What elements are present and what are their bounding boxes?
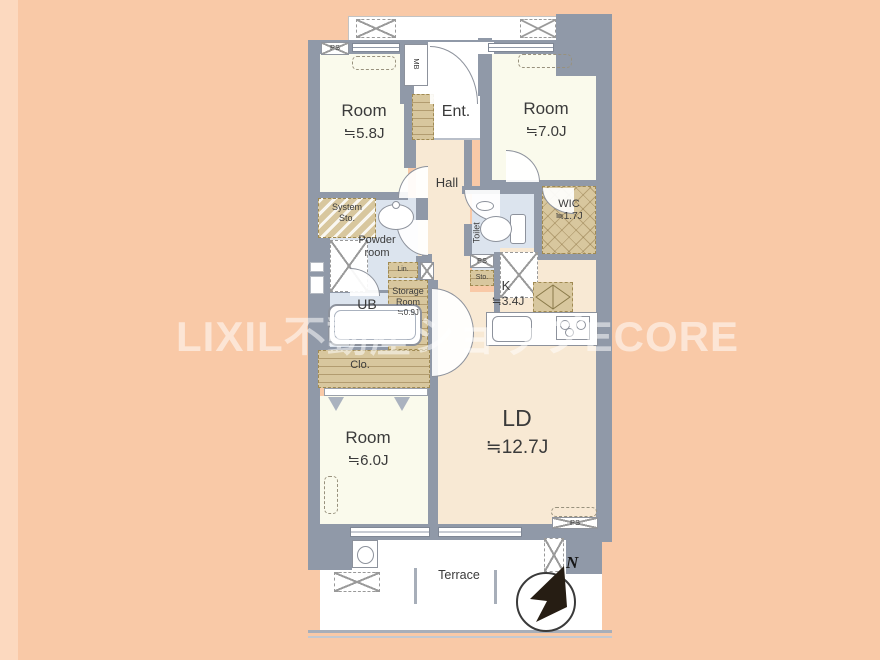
wall-accessory-1	[310, 262, 324, 272]
wall-right	[596, 14, 612, 542]
living-dining-size: ≒12.7J	[470, 438, 564, 458]
wic-label: WIC	[546, 199, 592, 211]
washbasin-tap-icon	[392, 201, 400, 209]
wall-powder-hall-upper	[416, 198, 428, 220]
terrace-label: Terrace	[428, 569, 490, 582]
wall-niche-outline	[324, 476, 338, 514]
ps-shaft-icon	[420, 262, 434, 280]
wall-accessory-2	[310, 276, 324, 294]
toilet-label: Toilet	[472, 204, 481, 262]
corridor-shaft-icon	[520, 19, 556, 38]
wall-corner-sw	[308, 524, 352, 570]
faucet-circle	[357, 546, 374, 564]
window-top-roomne	[488, 43, 554, 52]
toilet-tank-icon	[510, 214, 526, 244]
wic-size: ≒1.7J	[544, 212, 594, 223]
hall-label: Hall	[426, 176, 468, 190]
wall-roomne-left	[480, 52, 492, 182]
ceiling-light-outline	[352, 56, 396, 70]
entrance-label: Ent.	[434, 104, 478, 121]
window-top-roomnw	[352, 43, 400, 52]
room-ne-label: Room	[512, 100, 580, 118]
powder-room-label-1: Powder	[348, 235, 406, 247]
closet-door-track	[324, 388, 428, 396]
ps-bottom-right-label: PS	[552, 519, 598, 527]
room-nw-size: ≒5.8J	[328, 126, 400, 142]
room-sw-label: Room	[334, 429, 402, 447]
kitchen-label: K	[494, 279, 518, 293]
background-edge-strip	[0, 0, 18, 660]
ps-center-label: PS	[470, 257, 494, 265]
system-storage-label-2: Sto.	[322, 214, 372, 223]
window-bottom-ld	[438, 527, 522, 537]
terrace-divider	[494, 570, 497, 604]
linen-label: Lin.	[388, 266, 418, 273]
terrace-faucet-icon	[352, 540, 378, 568]
ps-top-left-label: PS	[321, 44, 349, 52]
corridor-shaft-icon	[356, 19, 396, 38]
wall-toilet-wic	[534, 186, 542, 256]
folding-door-mark-icon	[328, 397, 344, 411]
compass: N	[508, 552, 594, 638]
watermark: LIXIL不動産ショップECORE	[176, 303, 739, 364]
room-sw-size: ≒6.0J	[332, 453, 404, 469]
system-storage-label-1: System	[320, 203, 374, 212]
equipment-pad-icon	[334, 572, 380, 592]
powder-room-label-2: room	[352, 248, 402, 260]
ceiling-light-outline	[518, 54, 572, 68]
room-nw-label: Room	[330, 102, 398, 120]
toilet-bowl-icon	[480, 216, 512, 242]
meter-box-label: MB	[412, 52, 420, 76]
ld-duct-outline	[551, 507, 597, 517]
floorplan-image: N Room ≒5.8J Ent. Room ≒7.0J Hall System…	[0, 0, 880, 660]
wall-roomsw-ld	[428, 388, 438, 524]
room-ne-size: ≒7.0J	[510, 124, 582, 140]
compass-north-label: N	[565, 553, 579, 572]
window-bottom-roomsw	[350, 527, 430, 537]
living-dining-label: LD	[494, 406, 540, 430]
small-storage-label: Sto.	[470, 274, 494, 281]
terrace-divider	[414, 568, 417, 604]
storage-room-label-1: Storage	[388, 287, 428, 296]
folding-door-mark-icon	[394, 397, 410, 411]
